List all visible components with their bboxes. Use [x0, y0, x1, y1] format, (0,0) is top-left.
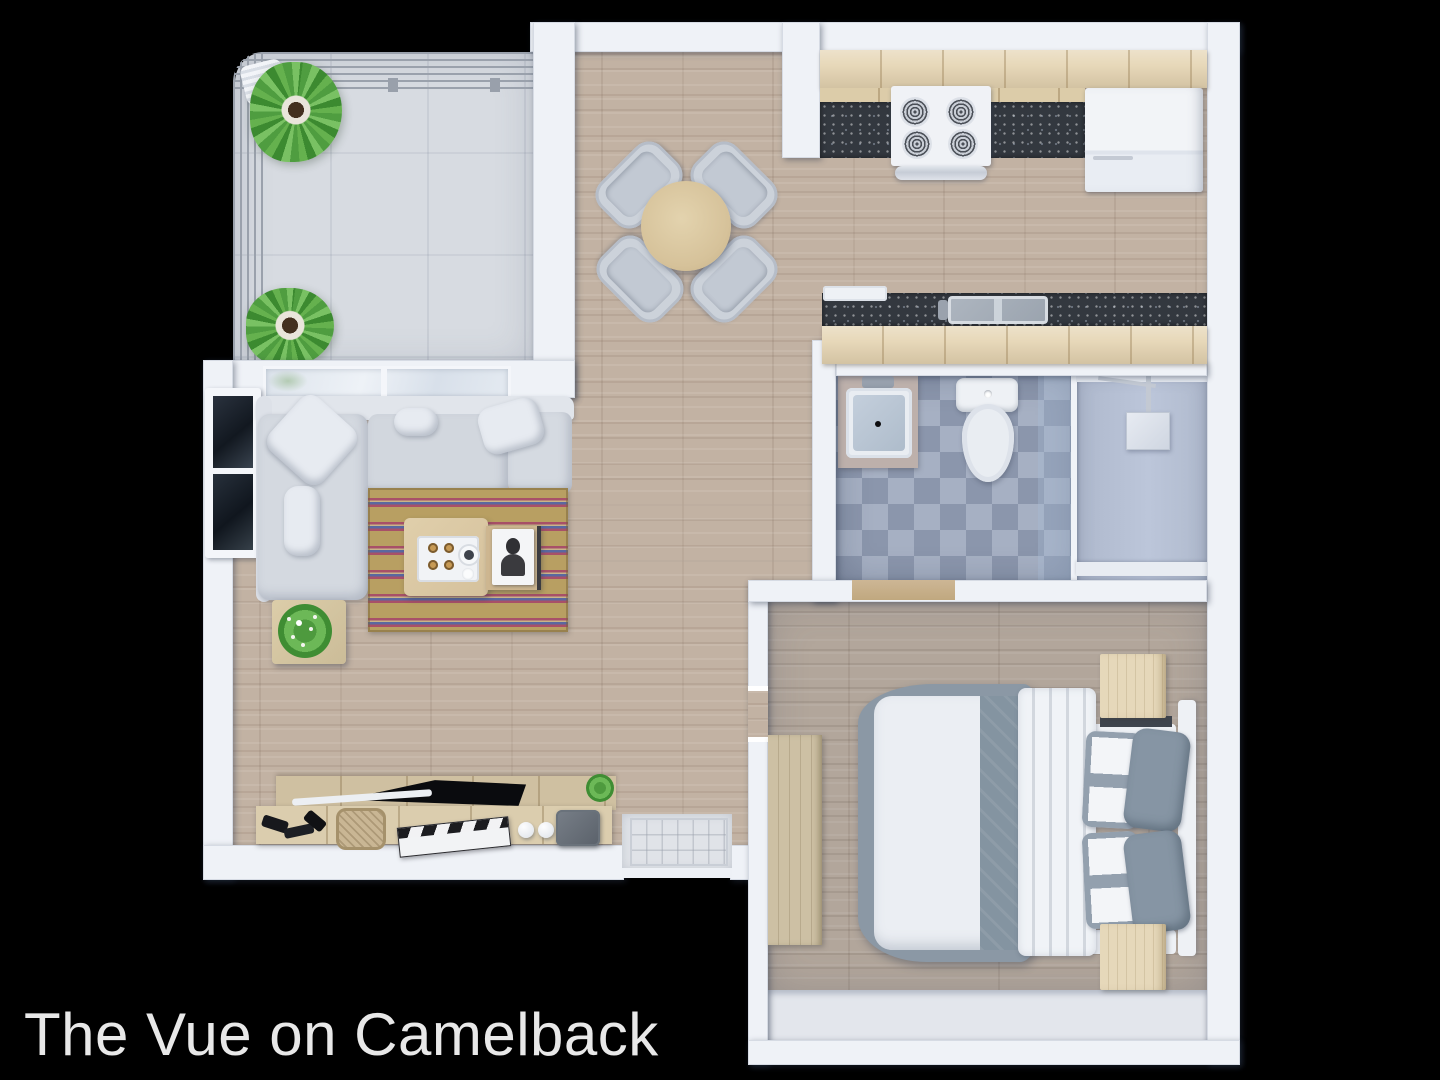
glass-door-mullion: [381, 366, 387, 400]
railing-post: [388, 78, 398, 92]
bedroom-closet-nook: [768, 990, 1207, 1042]
stove-burner-icon: [948, 99, 974, 125]
upper-cabinets: [820, 50, 1207, 88]
wardrobe: [768, 735, 822, 945]
door-jamb: [748, 737, 768, 742]
storage-box: [556, 810, 600, 846]
entry-door-step: [622, 868, 732, 878]
sink-drain: [875, 421, 881, 427]
cup: [444, 560, 454, 570]
wall-living-bedroom: [748, 583, 768, 1065]
wall-kitchen-stub: [782, 22, 820, 158]
stove-handle: [895, 166, 987, 180]
small-dish: [462, 568, 474, 580]
peninsula-cabinet-front: [822, 326, 1207, 364]
decor-sphere: [538, 822, 554, 838]
left-window-pane: [213, 474, 253, 550]
basket: [336, 808, 386, 850]
wall-right: [1207, 22, 1240, 1065]
gray-pillow: [1122, 829, 1192, 935]
potted-plant-icon: [278, 604, 332, 658]
wall-bottom-mid: [730, 845, 750, 880]
floor-plan-canvas: The Vue on Camelback: [0, 0, 1440, 1080]
left-window-pane: [213, 396, 253, 468]
sofa-pillow: [394, 408, 438, 436]
stove: [891, 86, 991, 166]
round-dining-table: [641, 181, 731, 271]
bed-accent-runner: [980, 696, 1022, 950]
cup: [428, 560, 438, 570]
vanity-faucet-icon: [862, 376, 894, 388]
book-portrait-head: [506, 538, 520, 554]
wall-top: [530, 22, 1240, 52]
counter-tray: [823, 286, 887, 301]
book-portrait-body: [501, 554, 525, 576]
wall-bathroom-left: [812, 340, 836, 602]
railing-post: [490, 78, 500, 92]
bathroom-door-threshold: [852, 580, 955, 600]
stove-burner-icon: [902, 99, 928, 125]
entry-door-mat: [630, 818, 728, 866]
toilet-flush-button: [984, 390, 992, 398]
stove-burner-icon: [950, 131, 976, 157]
sink-faucet-icon: [938, 300, 948, 320]
sofa-pillow: [284, 486, 320, 556]
console-plant-icon: [586, 774, 614, 802]
gray-pillow: [1122, 727, 1192, 833]
wall-bathroom-top: [836, 362, 1207, 376]
refrigerator: [1085, 88, 1203, 192]
cup: [428, 543, 438, 553]
kitchen-sink: [948, 296, 1048, 324]
stove-burner-icon: [904, 131, 930, 157]
nightstand: [1100, 654, 1166, 718]
cup: [444, 543, 454, 553]
shower-curb: [1076, 562, 1207, 576]
door-jamb: [748, 686, 768, 691]
rain-shower-head-icon: [1126, 412, 1170, 450]
page-title: The Vue on Camelback: [24, 1000, 659, 1069]
plant-flowers: [296, 620, 302, 626]
decor-sphere: [518, 822, 534, 838]
refrigerator-handle: [1093, 156, 1133, 160]
wall-bedroom-bottom: [748, 1040, 1240, 1065]
glass-door-plant-reflection: [268, 370, 308, 392]
shower-floor: [1076, 374, 1207, 584]
plate-center: [464, 550, 474, 560]
nightstand: [1100, 924, 1166, 990]
bedroom-doorway: [748, 691, 768, 737]
wall-bathroom-bedroom: [748, 580, 1207, 602]
shower-glass-frame: [1071, 374, 1077, 584]
wall-balcony-divider: [533, 22, 575, 398]
coffee-table-edge: [537, 526, 541, 590]
